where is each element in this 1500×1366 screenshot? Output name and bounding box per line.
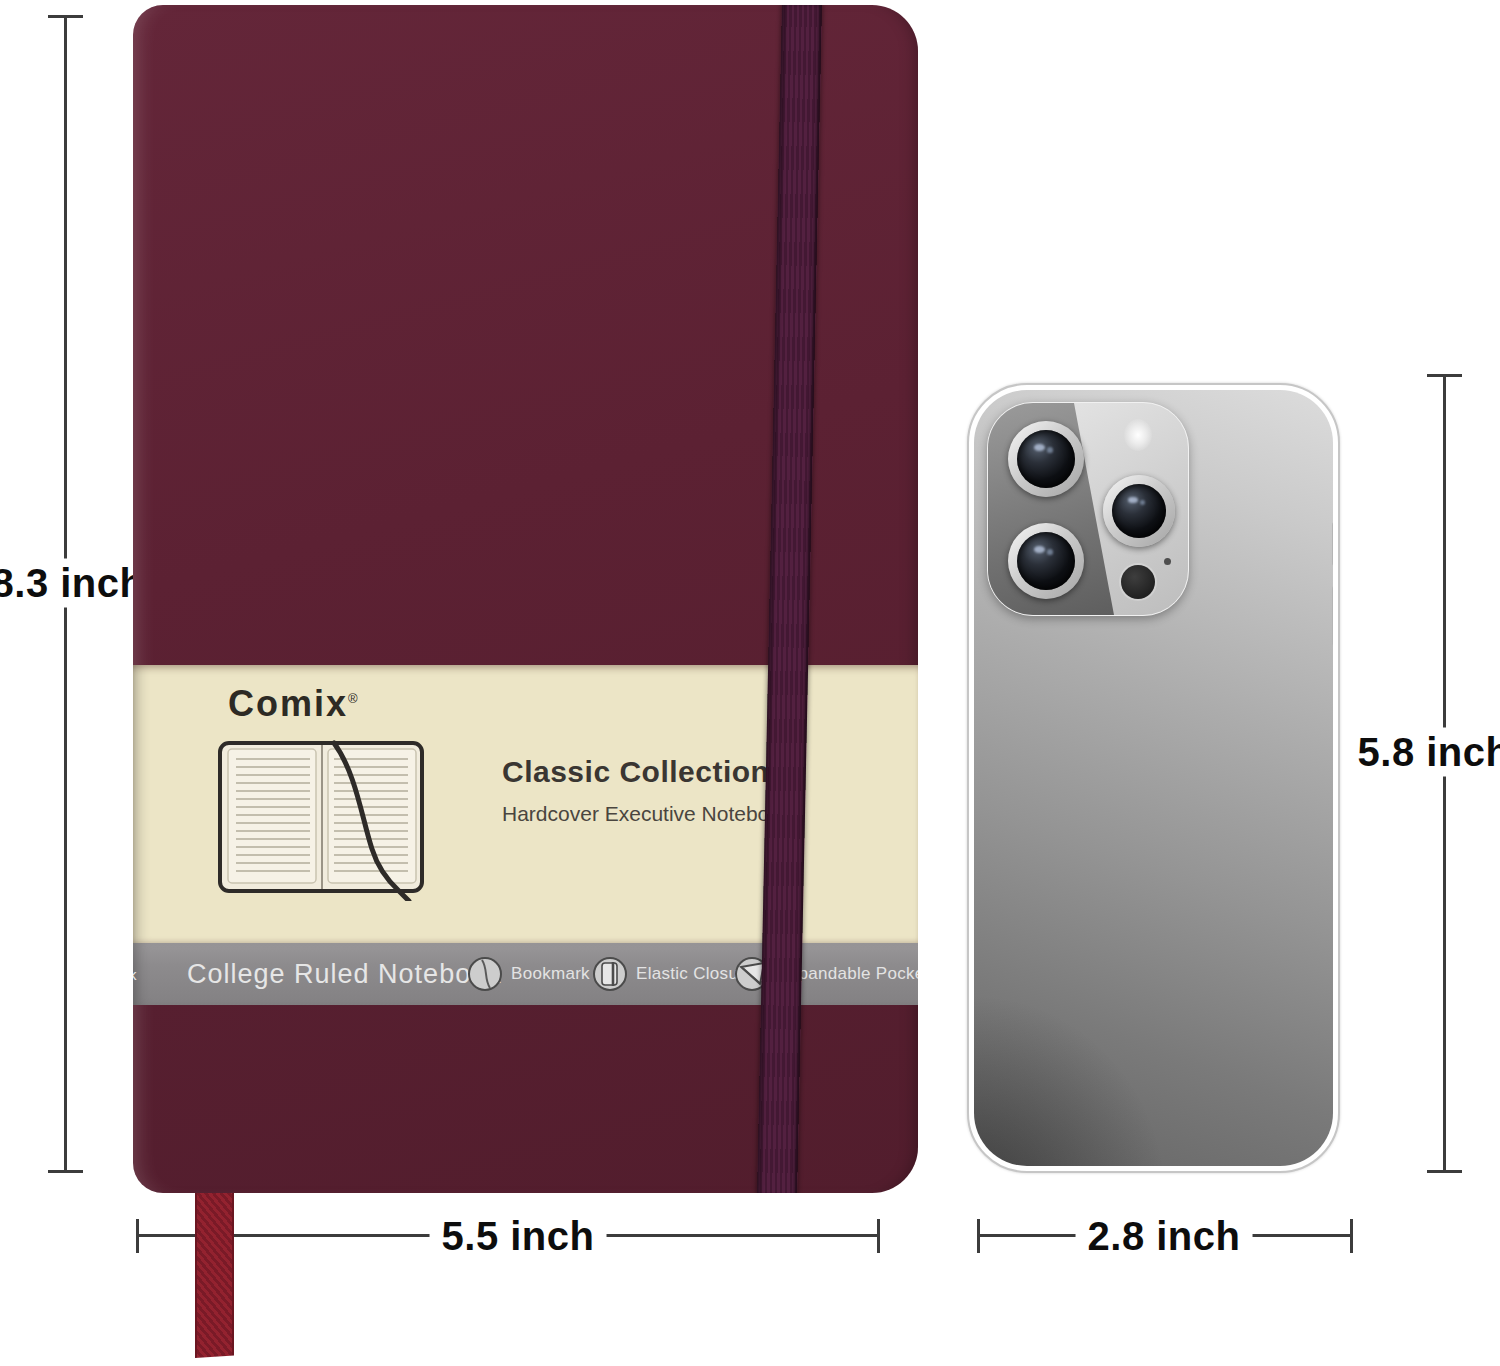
product-photo: 8.3 inch 5.5 inch 5.8 inch 2.8 inch Comi… (0, 0, 1500, 1366)
bookmark-ribbon (195, 1186, 234, 1358)
lens-glass (1017, 430, 1075, 488)
camera-lens-bottom-left (1008, 523, 1084, 599)
dimension-cap (48, 15, 83, 18)
notebook-width-label: 5.5 inch (430, 1212, 607, 1261)
flash-light (1124, 419, 1152, 451)
camera-lens-right (1103, 475, 1175, 547)
lens-glass (1017, 532, 1075, 590)
side-button (1332, 586, 1333, 646)
elastic-closure-icon (592, 956, 628, 992)
notebook: Comix® Classic Collection Hardcover Exec… (133, 5, 918, 1193)
open-notebook-sketch (216, 731, 428, 901)
dimension-cap (1427, 1170, 1462, 1173)
bookmark-icon (467, 956, 503, 992)
lens-glass (1112, 484, 1166, 538)
dimension-tick (977, 1219, 980, 1253)
phone-back (974, 390, 1333, 1166)
feature-label: Bookmark (511, 964, 590, 984)
registered-mark: ® (348, 691, 360, 706)
feature-elastic-closure: Elastic Closure (592, 943, 754, 1005)
brand-text: Comix (228, 683, 348, 724)
feature-bookmark: Bookmark (467, 943, 590, 1005)
lidar-sensor (1121, 565, 1155, 599)
band-label: College Ruled Notebook (187, 959, 502, 990)
collection-subtitle: Hardcover Executive Notebook (502, 802, 791, 826)
dimension-tick (136, 1219, 139, 1253)
collection-title: Classic Collection (502, 755, 769, 789)
brand-logo: Comix® (228, 683, 360, 725)
camera-module (987, 402, 1189, 616)
dimension-cap (48, 1170, 83, 1173)
side-button (1332, 522, 1333, 566)
dimension-tick (1350, 1219, 1353, 1253)
dimension-cap (1427, 374, 1462, 377)
phone-height-label: 5.8 inch (1346, 728, 1500, 777)
phone (967, 383, 1340, 1173)
band-label-fragment: k (133, 966, 137, 983)
mic-dot (1164, 558, 1171, 565)
camera-lens-top-left (1008, 421, 1084, 497)
dimension-tick (877, 1219, 880, 1253)
phone-width-label: 2.8 inch (1076, 1212, 1253, 1261)
elastic-band (757, 5, 822, 1193)
